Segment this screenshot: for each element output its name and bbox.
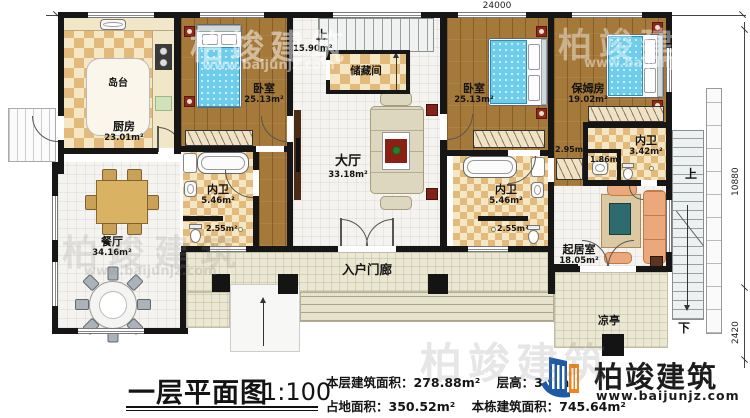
corridor-left-floor — [259, 148, 287, 246]
room-area: 23.01m² — [104, 133, 143, 143]
window — [52, 196, 58, 240]
blanket — [490, 40, 527, 104]
wall-segment — [58, 148, 158, 154]
french-door-opening — [580, 266, 636, 272]
sofa — [643, 190, 666, 264]
bed — [488, 38, 548, 106]
stair-arrow — [687, 205, 688, 305]
room-name: 内卫 — [201, 183, 235, 196]
title-underline — [126, 406, 318, 411]
nightstand — [184, 96, 195, 107]
door-opening — [253, 170, 259, 196]
center-staircase — [318, 18, 434, 52]
window — [468, 246, 508, 252]
wall-segment — [617, 149, 621, 182]
side-table — [426, 104, 438, 116]
stair-up-label: 上 — [685, 165, 697, 182]
door-opening — [548, 158, 554, 182]
cutting-board — [155, 96, 172, 111]
room-area: 19.02m² — [568, 95, 607, 105]
floor-drain — [238, 227, 243, 232]
room-label-nanny: 保姆房 19.02m² — [568, 82, 607, 105]
room-name: 储藏间 — [350, 65, 382, 78]
round-table-inner — [99, 291, 127, 319]
room-label-kitchen: 厨房 23.01m² — [104, 120, 143, 143]
door-opening — [326, 60, 330, 80]
entry-door-opening — [338, 246, 396, 252]
dining-chair — [127, 223, 142, 235]
nightstand — [536, 26, 547, 37]
room-label-pavilion: 凉亭 — [598, 314, 620, 327]
room-name: 内卫 — [629, 134, 663, 147]
wall-segment — [326, 50, 410, 54]
room-label-bedroom-left: 卧室 25.13m² — [244, 82, 283, 105]
pillow — [644, 39, 656, 64]
door-opening — [287, 116, 293, 142]
room-area: 18.05m² — [559, 256, 598, 266]
dimension-top-width: 24000 — [483, 1, 512, 11]
wall-segment — [406, 50, 410, 94]
wardrobe — [185, 130, 253, 146]
room-label-bath-right: 内卫 3.42m² — [629, 134, 663, 157]
wall-segment — [326, 90, 410, 94]
entry-walkway — [230, 284, 300, 352]
wall-segment — [253, 148, 259, 246]
bathroom-sink — [184, 181, 197, 197]
side-table — [426, 188, 438, 200]
room-area: 3.42m² — [629, 147, 663, 157]
entry-arrow-head — [260, 297, 266, 303]
column — [428, 274, 448, 294]
stat-value: 350.52m² — [389, 399, 456, 414]
window — [88, 12, 154, 18]
area-label-washroom-right: 1.86m² — [590, 155, 622, 164]
kitchen-sink — [100, 19, 126, 30]
room-name: 大厅 — [328, 154, 367, 170]
wall-segment — [180, 252, 186, 334]
entry-steps — [300, 292, 554, 322]
room-area: 5.46m² — [201, 196, 235, 206]
pillow — [528, 44, 540, 70]
dining-chair — [137, 299, 151, 310]
door-opening — [256, 146, 284, 152]
wall-segment — [548, 264, 555, 294]
column — [278, 274, 298, 294]
wall-segment — [583, 180, 672, 186]
bathroom-sink — [531, 182, 544, 198]
area-label-closet-right: 2.95m² — [555, 145, 587, 154]
closet-hatch — [556, 158, 583, 180]
nightstand — [536, 108, 547, 119]
wall-segment — [478, 216, 528, 221]
room-label-porch: 入户门廊 — [342, 262, 392, 277]
window — [572, 12, 642, 18]
toilet — [189, 224, 202, 243]
floor-plan-canvas: 24000 10880 2420 — [0, 0, 750, 418]
wall-segment — [548, 12, 554, 266]
wall-segment — [583, 122, 672, 128]
window — [666, 200, 672, 252]
dining-chair — [102, 223, 117, 235]
window — [333, 12, 421, 18]
wardrobe — [473, 130, 545, 148]
area-label-wc-center: 2.55m² — [497, 224, 529, 233]
room-label-bedroom-center: 卧室 25.13m² — [454, 82, 493, 105]
dining-chair — [85, 195, 97, 210]
wall-segment — [52, 162, 58, 334]
bed — [606, 34, 664, 98]
room-name: 餐厅 — [92, 235, 131, 248]
tv — [296, 138, 300, 172]
area-label-stairwell: 15.90m² — [293, 44, 332, 54]
porch-floor-left — [186, 292, 230, 328]
wall-segment — [183, 216, 223, 221]
wardrobe — [588, 106, 664, 122]
toilet — [622, 163, 634, 180]
armchair — [380, 196, 412, 210]
room-area: 25.13m² — [454, 95, 493, 105]
window — [78, 328, 144, 334]
room-label-storage: 储藏间 — [350, 65, 382, 78]
room-label-bath-center: 内卫 5.46m² — [489, 183, 523, 206]
area-label-wc-left: 2.55m² — [206, 224, 238, 233]
blanket — [198, 47, 240, 107]
stat-value: 278.88m² — [414, 375, 481, 390]
tea-table — [609, 203, 631, 235]
wall-segment — [174, 12, 181, 154]
window — [666, 48, 672, 92]
room-label-living: 起居室 18.05m² — [559, 243, 598, 266]
dining-chair — [108, 267, 119, 281]
dimension-right-depth: 2420 — [731, 321, 741, 344]
company-logo-icon — [536, 352, 588, 406]
stats-row-2: 占地面积：350.52m² 本栋建筑面积：745.64m² — [326, 396, 638, 415]
room-area: 33.18m² — [328, 170, 367, 180]
company-logo-url: www.baijunjz.com — [596, 388, 740, 403]
room-label-bath-left: 内卫 5.46m² — [201, 183, 235, 206]
room-area: 5.46m² — [489, 196, 523, 206]
plant — [392, 146, 401, 155]
column — [602, 334, 624, 356]
pillow — [202, 34, 218, 45]
room-name: 起居室 — [559, 243, 598, 256]
door-opening — [641, 180, 657, 186]
stat-label: 占地面积： — [326, 399, 389, 414]
right-railing — [706, 88, 722, 334]
stove — [155, 44, 172, 70]
stair-down-label: 下 — [678, 319, 690, 336]
window — [200, 12, 264, 18]
stair-up-label: 上 — [316, 26, 328, 43]
shower-tray — [183, 153, 197, 173]
room-area: 34.16m² — [92, 248, 131, 258]
pillow — [644, 68, 656, 93]
headboard — [541, 39, 547, 105]
room-name: 厨房 — [104, 120, 143, 133]
room-name: 入户门廊 — [342, 262, 392, 277]
dining-chair — [147, 195, 159, 210]
room-name: 凉亭 — [598, 314, 620, 327]
stat-label: 本层建筑面积： — [326, 375, 414, 390]
dining-chair — [102, 169, 117, 181]
blanket — [608, 36, 643, 96]
room-name: 卧室 — [244, 82, 283, 95]
nightstand — [184, 26, 195, 37]
wall-segment — [58, 140, 64, 174]
room-label-hall: 大厅 33.18m² — [328, 154, 367, 180]
room-name: 保姆房 — [568, 82, 607, 95]
entry-arrow — [263, 302, 264, 346]
column — [212, 274, 230, 292]
floor-drain — [491, 227, 496, 232]
pillow — [528, 75, 540, 101]
wall-segment — [58, 12, 64, 116]
dining-table — [96, 180, 148, 224]
plan-scale: 1:100 — [262, 378, 331, 406]
dimension-line-right — [744, 22, 745, 368]
armchair — [380, 92, 412, 106]
nightstand — [652, 22, 663, 33]
room-name: 内卫 — [489, 183, 523, 196]
dimension-right-height: 10880 — [731, 167, 741, 196]
wall-segment — [583, 149, 621, 153]
dining-chair — [75, 299, 89, 310]
pillow — [221, 34, 237, 45]
shower-drain — [649, 166, 654, 171]
door-opening — [508, 150, 540, 156]
stair-arrow — [396, 58, 397, 90]
stair-arrow-head — [684, 305, 690, 311]
stat-label: 层高： — [497, 375, 535, 390]
door-opening — [440, 114, 447, 140]
headboard — [657, 35, 663, 97]
window — [210, 246, 246, 252]
dining-chair — [127, 169, 142, 181]
plan-title: 一层平面图 — [128, 371, 268, 410]
room-name: 卧室 — [454, 82, 493, 95]
room-name: 岛台 — [108, 78, 128, 90]
window — [52, 262, 58, 306]
room-area: 25.13m² — [244, 95, 283, 105]
headboard — [197, 25, 241, 32]
room-label-dining: 餐厅 34.16m² — [92, 235, 131, 258]
window — [458, 12, 526, 18]
room-label-island: 岛台 — [108, 78, 128, 90]
bed — [196, 24, 242, 108]
